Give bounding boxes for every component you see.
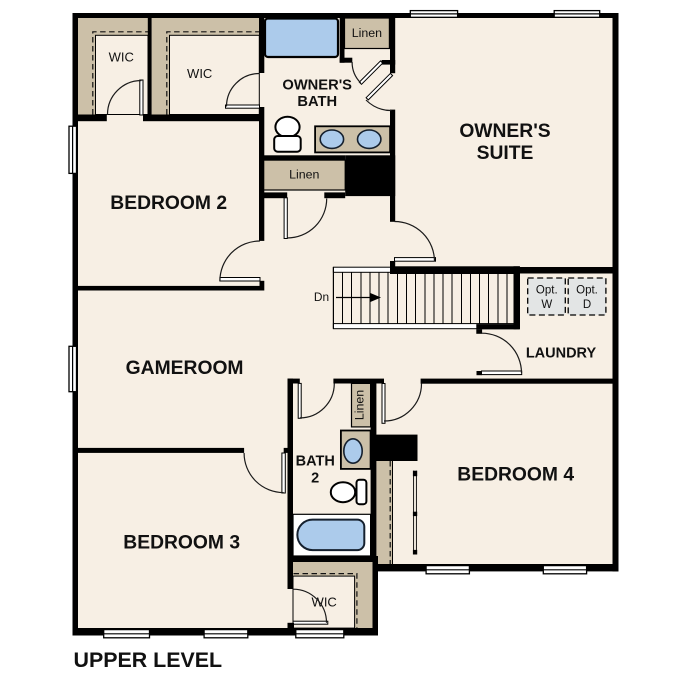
- svg-text:OWNER'S: OWNER'S: [459, 121, 550, 142]
- svg-text:Opt.: Opt.: [536, 284, 558, 296]
- svg-text:BEDROOM 4: BEDROOM 4: [457, 465, 574, 486]
- svg-text:2: 2: [311, 470, 319, 486]
- svg-text:BATH: BATH: [297, 94, 337, 110]
- svg-text:BEDROOM 2: BEDROOM 2: [110, 193, 227, 214]
- svg-text:W: W: [541, 299, 552, 311]
- svg-text:Linen: Linen: [353, 390, 367, 420]
- svg-text:Dn: Dn: [314, 290, 329, 304]
- svg-text:Linen: Linen: [289, 168, 319, 182]
- svg-text:UPPER LEVEL: UPPER LEVEL: [74, 648, 223, 672]
- svg-text:SUITE: SUITE: [477, 143, 534, 164]
- svg-text:Linen: Linen: [352, 26, 382, 40]
- svg-text:OWNER'S: OWNER'S: [282, 78, 352, 94]
- svg-text:D: D: [583, 299, 591, 311]
- svg-text:BATH: BATH: [296, 454, 335, 470]
- svg-text:BEDROOM 3: BEDROOM 3: [123, 532, 240, 553]
- svg-text:WIC: WIC: [109, 50, 134, 65]
- svg-text:LAUNDRY: LAUNDRY: [526, 346, 597, 362]
- svg-text:Opt.: Opt.: [576, 284, 598, 296]
- svg-text:GAMEROOM: GAMEROOM: [126, 358, 244, 379]
- svg-text:WIC: WIC: [312, 595, 337, 610]
- svg-text:WIC: WIC: [187, 66, 212, 81]
